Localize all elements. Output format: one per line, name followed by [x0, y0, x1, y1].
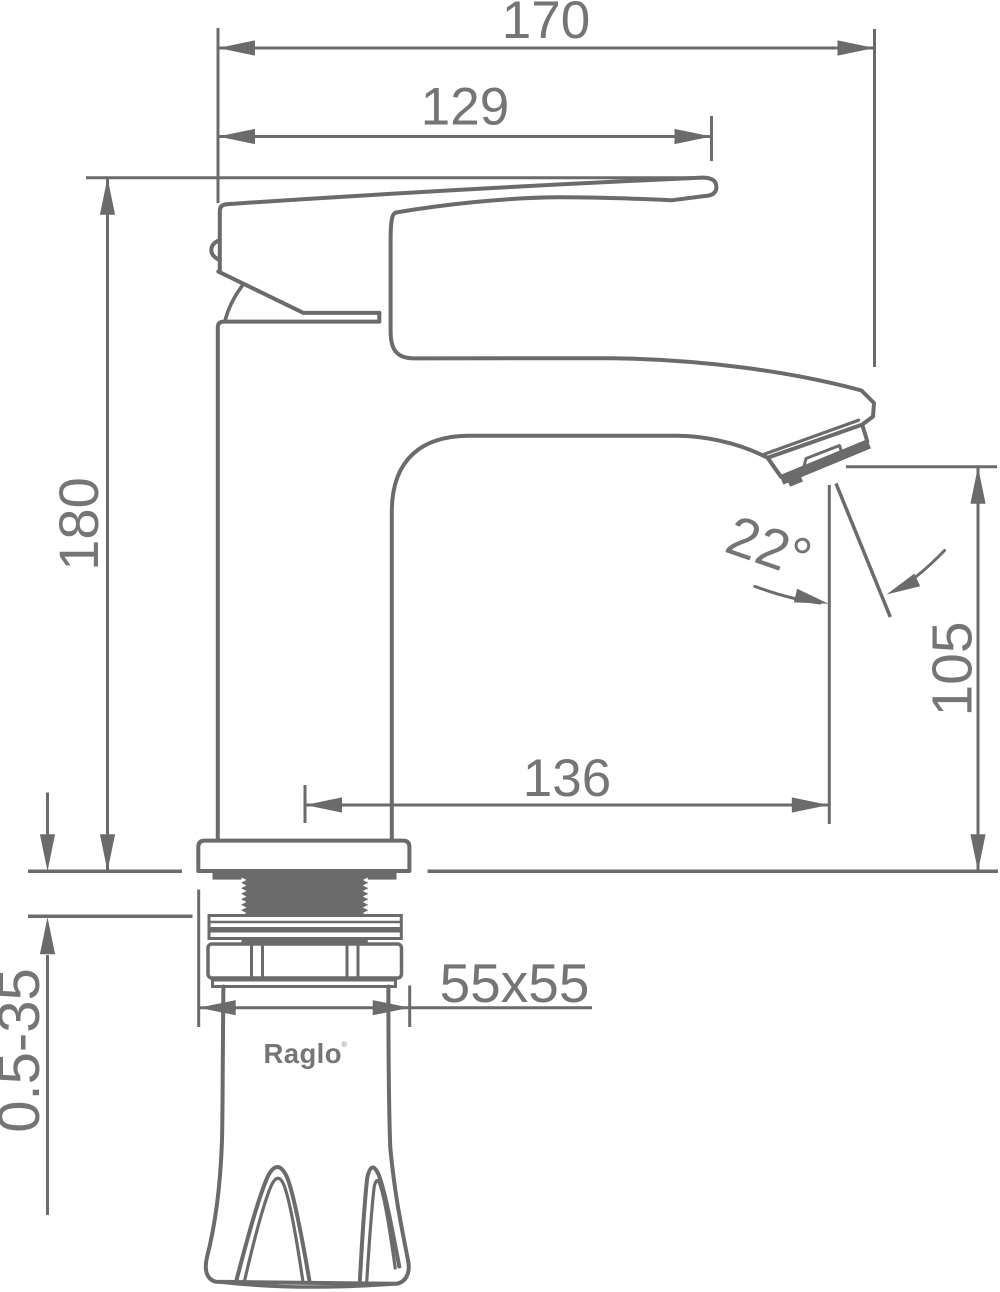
svg-text:170: 170	[502, 0, 590, 50]
svg-text:®: ®	[342, 1040, 348, 1049]
svg-text:Raglo: Raglo	[264, 1038, 342, 1069]
svg-text:105: 105	[921, 621, 985, 716]
svg-text:55x55: 55x55	[440, 952, 590, 1014]
svg-text:129: 129	[421, 78, 509, 137]
svg-text:136: 136	[523, 749, 611, 808]
svg-text:180: 180	[47, 477, 110, 570]
svg-text:0.5-35: 0.5-35	[0, 968, 52, 1132]
